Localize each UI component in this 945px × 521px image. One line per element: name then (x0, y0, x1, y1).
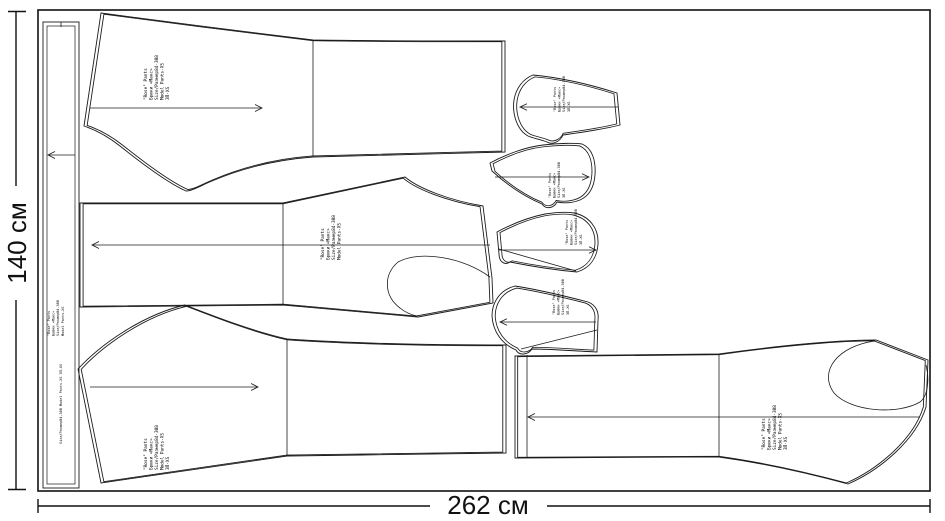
pattern-piece-front-leg-bottom-right: "Rose" Pants Брюки «Макс» Size/Размер84-… (515, 340, 928, 484)
svg-text:"Rose" Pants: "Rose" Pants (552, 290, 556, 315)
svg-text:Size/Размер84-308: Size/Размер84-308 (557, 162, 561, 198)
crotch-curve (387, 256, 490, 316)
pocket-opening-line (521, 330, 597, 349)
pattern-piece-back-leg-middle: "Rose" Pants Брюки «Макс» Size/Размер84-… (80, 177, 493, 317)
strip-info-label: Size/Размер84-308 Model Pants-XS ЗП-XS (59, 364, 63, 444)
grainline-arrow (90, 105, 262, 112)
svg-text:ЗП-XS: ЗП-XS (783, 436, 789, 450)
fabric-frame (38, 10, 930, 491)
grainline-arrow (48, 152, 75, 159)
svg-text:ЗП-XS: ЗП-XS (579, 234, 583, 245)
svg-text:Model Pants-XS: Model Pants-XS (160, 433, 166, 470)
height-dimension: 140 см (2, 12, 32, 491)
svg-text:"Rose" Pants: "Rose" Pants (565, 220, 569, 245)
svg-text:Брюки «Макс»: Брюки «Макс» (149, 438, 155, 470)
svg-text:Size/Размер84-308: Size/Размер84-308 (574, 209, 578, 245)
grainline-arrow (92, 242, 490, 249)
width-dimension-label: 262 см (447, 490, 528, 520)
pattern-piece-pocket-bag-2: "Rose" Pants Брюки «Макс» Size/Размер84-… (490, 143, 595, 207)
svg-text:"Rose" Pants: "Rose" Pants (143, 68, 149, 100)
svg-text:Брюки «Макс»: Брюки «Макс» (149, 68, 155, 100)
svg-text:Model Pants-XS: Model Pants-XS (778, 413, 784, 450)
piece-label: "Rose" Pants Брюки «Макс» Size/Размер84-… (320, 215, 343, 260)
svg-text:Size/Размер84-308: Size/Размер84-308 (331, 215, 337, 260)
pattern-piece-pocket-bag-1: "Rose" Pants Брюки «Макс» Size/Размер84-… (514, 75, 620, 143)
pattern-piece-front-leg-bottom-left: "Rose" Pants Брюки «Макс» Size/Размер84-… (78, 305, 506, 483)
svg-text:Size/Размер84-308: Size/Размер84-308 (562, 76, 566, 112)
svg-text:ЗП-XS: ЗП-XS (165, 86, 171, 100)
svg-text:"Rose" Pants: "Rose" Pants (47, 311, 51, 336)
grainline-arrow (90, 384, 258, 391)
svg-text:Size/Размер84-308: Size/Размер84-308 (561, 279, 565, 315)
svg-text:Брюки «Макс»: Брюки «Макс» (767, 418, 773, 450)
svg-text:Size/Размер84-308: Size/Размер84-308 (154, 55, 160, 100)
width-dimension: 262 см (38, 490, 930, 520)
svg-text:Брюки «Макс»: Брюки «Макс» (558, 87, 562, 112)
pattern-piece-pocket-bag-3: "Rose" Pants Брюки «Макс» Size/Размер84-… (497, 209, 598, 272)
grainline-arrow (499, 247, 596, 253)
pocket-opening-line (499, 249, 576, 271)
svg-text:ЗП-XS: ЗП-XS (165, 456, 171, 470)
svg-text:"Rose" Pants: "Rose" Pants (143, 438, 149, 470)
grainline-arrow (495, 174, 589, 180)
svg-text:"Rose" Pants: "Rose" Pants (761, 418, 767, 450)
grainline-arrow (528, 414, 920, 421)
svg-text:Size/Размер84-308: Size/Размер84-308 (154, 425, 160, 470)
svg-text:"Rose" Pants: "Rose" Pants (320, 228, 326, 260)
svg-text:"Rose" Pants: "Rose" Pants (548, 173, 552, 198)
pattern-piece-pocket-bag-4: "Rose" Pants Брюки «Макс» Size/Размер84-… (492, 279, 598, 354)
svg-text:Брюки «Макс»: Брюки «Макс» (52, 311, 56, 336)
svg-text:Брюки «Макс»: Брюки «Макс» (553, 173, 557, 198)
pattern-piece-waistband: "Rose" Pants Брюки «Макс» Size/Размер84-… (43, 22, 79, 488)
piece-label: "Rose" Pants Брюки «Макс» Size/Размер84-… (548, 162, 566, 198)
svg-text:Size/Размер84-308: Size/Размер84-308 (772, 405, 778, 450)
piece-label: "Rose" Pants Брюки «Макс» Size/Размер84-… (47, 300, 65, 336)
piece-label: "Rose" Pants Брюки «Макс» Size/Размер84-… (143, 425, 171, 470)
pattern-layout-canvas: 140 см 262 см "Rose" Pants Брюки «Макс» … (0, 0, 945, 521)
svg-text:"Rose" Pants: "Rose" Pants (553, 87, 557, 112)
svg-text:Брюки «Макс»: Брюки «Макс» (570, 220, 574, 245)
piece-label: "Rose" Pants Брюки «Макс» Size/Размер84-… (143, 55, 171, 100)
crotch-curve (828, 341, 927, 410)
svg-text:ЗП-XS: ЗП-XS (566, 304, 570, 315)
pattern-piece-back-leg-top: "Rose" Pants Брюки «Макс» Size/Размер84-… (84, 13, 505, 191)
svg-text:Model Pants-XS: Model Pants-XS (337, 223, 343, 260)
svg-text:ЗП-XS: ЗП-XS (562, 187, 566, 198)
marker-layout-svg: 140 см 262 см "Rose" Pants Брюки «Макс» … (0, 0, 945, 521)
grainline-arrow (500, 319, 596, 325)
svg-text:ЗП-XS: ЗП-XS (567, 101, 571, 112)
svg-text:Model Pants-XS: Model Pants-XS (61, 306, 65, 336)
svg-text:Брюки «Макс»: Брюки «Макс» (326, 228, 332, 260)
svg-text:Model Pants-XS: Model Pants-XS (160, 63, 166, 100)
piece-label: "Rose" Pants Брюки «Макс» Size/Размер84-… (761, 405, 789, 450)
svg-text:Size/Размер84-308: Size/Размер84-308 (56, 300, 60, 336)
height-dimension-label: 140 см (2, 202, 32, 283)
svg-text:Брюки «Макс»: Брюки «Макс» (557, 290, 561, 315)
